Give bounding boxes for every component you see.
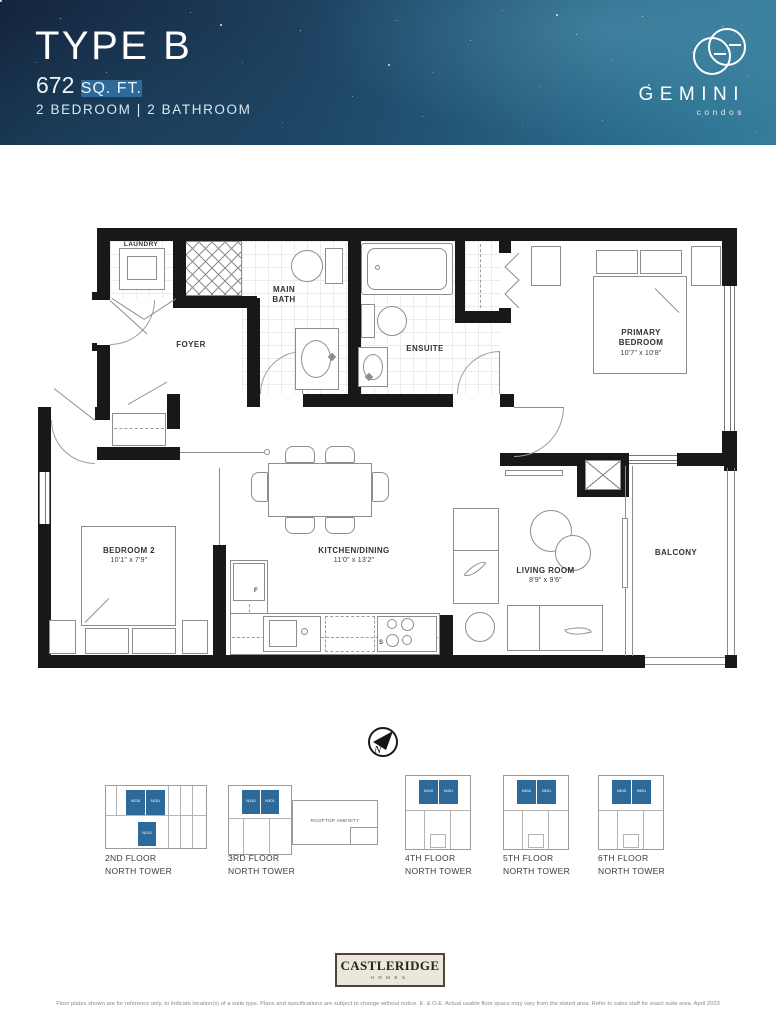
wall [722, 241, 737, 286]
room-label-primary: PRIMARY BEDROOM 10'7" x 10'8" [589, 328, 693, 358]
burner [386, 634, 399, 647]
fridge-label: F [254, 588, 258, 594]
builder-logo: CASTLERIDGE HOMES [335, 953, 445, 987]
wall [500, 453, 577, 466]
unit-badge: N401 [439, 780, 458, 804]
bed-pillow [132, 628, 176, 654]
brand-subtitle: condos [645, 107, 745, 117]
caption-line: NORTH TOWER [105, 865, 172, 878]
unit-badge: N410 [419, 780, 438, 804]
primary-door-leaf [514, 407, 564, 408]
console-divider [454, 550, 498, 551]
dining-chair [285, 517, 315, 534]
bedroom2-door-leaf [54, 388, 96, 421]
rail [180, 452, 267, 453]
toilet-tank [361, 304, 375, 338]
room-dims: 8'9" x 9'6" [488, 576, 603, 585]
suite-configuration: 2 BEDROOM | 2 BATHROOM [36, 102, 251, 117]
sliding-door [632, 466, 633, 656]
closet [112, 413, 166, 446]
burner [402, 635, 412, 645]
wall [361, 394, 453, 407]
sink-basin [269, 620, 297, 647]
bed-pillow [596, 250, 638, 274]
toilet-bowl [377, 306, 407, 336]
builder-name: CASTLERIDGE [337, 958, 443, 974]
gemini-logo-bar [714, 53, 726, 55]
shaft-x-icon [585, 460, 621, 490]
wall [440, 615, 453, 668]
dining-chair [251, 472, 268, 502]
room-label-line: BEDROOM 2 [81, 546, 177, 556]
unit-badge: N210 [138, 822, 156, 846]
room-label-kitchen: KITCHEN/DINING 11'0" x 13'2" [279, 546, 429, 565]
closet-door-leaf [128, 382, 167, 405]
room-dims: 10'1" x 7'9" [81, 556, 177, 565]
wall [97, 345, 110, 407]
area-number: 672 [36, 72, 74, 98]
stove-label: S [379, 640, 383, 646]
burner [387, 619, 397, 629]
rooftop-amenity-outline: ROOFTOP AMENITY [292, 800, 378, 845]
console-unit [453, 508, 499, 604]
keyplate-caption-6th: 6TH FLOOR NORTH TOWER [598, 852, 665, 878]
caption-line: 5TH FLOOR [503, 852, 570, 865]
faucet [301, 628, 308, 635]
keyplate-5th-floor: N510 N501 [503, 775, 569, 850]
window [724, 286, 735, 431]
bed-pillow [640, 250, 682, 274]
room-label-balcony: BALCONY [643, 548, 709, 558]
keyplate-4th-floor: N410 N401 [405, 775, 471, 850]
toilet-bowl [291, 250, 323, 282]
sliding-door-panel [622, 518, 628, 588]
svg-text:N: N [373, 744, 382, 756]
unit-badge: N310 [242, 790, 260, 814]
unit-badge: N610 [612, 780, 631, 804]
caption-line: NORTH TOWER [405, 865, 472, 878]
unit-badge: N601 [632, 780, 651, 804]
toilet-tank [325, 248, 343, 284]
wall [92, 343, 97, 351]
dining-chair [325, 517, 355, 534]
room-label-laundry: LAUNDRY [111, 241, 171, 249]
room-label-ensuite: ENSUITE [393, 344, 457, 354]
caption-line: 3RD FLOOR [228, 852, 295, 865]
half-wall [219, 468, 220, 545]
keyplate-caption-4th: 4TH FLOOR NORTH TOWER [405, 852, 472, 878]
wall [213, 545, 226, 668]
keyplate-6th-floor: N610 N601 [598, 775, 664, 850]
room-label-living: LIVING ROOM 8'9" x 9'6" [488, 566, 603, 585]
unit-badge: N201 [146, 790, 165, 815]
unit-badge: N501 [537, 780, 556, 804]
balcony-railing [645, 657, 729, 665]
nightstand [182, 620, 208, 654]
window [629, 455, 677, 464]
closet-rod [480, 244, 481, 308]
room-label-line: MAIN [258, 285, 310, 295]
wall [455, 241, 465, 319]
dining-chair [325, 446, 355, 463]
keyplate-3rd-floor: N310 N301 [228, 785, 292, 855]
wall [455, 311, 505, 323]
wall [92, 292, 97, 300]
caption-line: 6TH FLOOR [598, 852, 665, 865]
room-label-main-bath: MAIN BATH [258, 285, 310, 306]
keyplate-caption-2nd: 2ND FLOOR NORTH TOWER [105, 852, 172, 878]
washer-drum [127, 256, 157, 280]
shower [185, 241, 242, 296]
ensuite-door-leaf [499, 351, 500, 394]
wall [38, 655, 645, 668]
media-console [505, 470, 563, 476]
wall [97, 228, 110, 300]
caption-line: NORTH TOWER [503, 865, 570, 878]
page-title: TYPE B [35, 24, 192, 69]
gemini-logo-circle-right [708, 28, 746, 66]
disclaimer-text: Floor plates shown are for reference onl… [40, 1001, 736, 1007]
header-banner: TYPE B 672 SQ. FT. 2 BEDROOM | 2 BATHROO… [0, 0, 776, 145]
bed-pillow [85, 628, 129, 654]
caption-line: NORTH TOWER [598, 865, 665, 878]
nightstand [691, 246, 721, 286]
compass-icon: N [366, 725, 400, 759]
bed [593, 276, 687, 374]
keyplate-caption-3rd: 3RD FLOOR NORTH TOWER [228, 852, 295, 878]
bifold-door-icon [503, 253, 523, 308]
star-field-bright [0, 0, 2, 2]
wall [499, 308, 511, 323]
wall [173, 296, 257, 308]
dishwasher [325, 616, 375, 652]
room-dims: 10'7" x 10'8" [589, 349, 693, 358]
sofa-cushion-line [539, 606, 540, 650]
window [39, 472, 50, 524]
tub-drain [375, 265, 380, 270]
suite-area: 672 SQ. FT. [36, 72, 142, 99]
wall [499, 241, 511, 253]
area-unit: SQ. FT. [81, 80, 142, 97]
wall [95, 407, 110, 420]
nightstand [531, 246, 561, 286]
fridge [233, 563, 265, 601]
room-label-line: BEDROOM [589, 338, 693, 348]
gemini-logo-bar [729, 44, 741, 46]
rooftop-amenity-label: ROOFTOP AMENITY [293, 818, 377, 823]
caption-line: NORTH TOWER [228, 865, 295, 878]
room-label-line: BATH [258, 295, 310, 305]
unit-badge: N215 [126, 790, 145, 815]
wall [167, 394, 180, 429]
room-label-foyer: FOYER [161, 340, 221, 350]
rail-end [264, 449, 270, 455]
closet-rod [114, 428, 164, 429]
nightstand [49, 620, 76, 654]
unit-badge: N510 [517, 780, 536, 804]
burner [401, 618, 414, 631]
room-label-line: KITCHEN/DINING [279, 546, 429, 556]
wall [722, 431, 737, 466]
dining-table [268, 463, 372, 517]
caption-line: 4TH FLOOR [405, 852, 472, 865]
unit-badge: N301 [261, 790, 279, 814]
primary-door-arc [514, 407, 564, 457]
wall [725, 655, 737, 668]
caption-line: 2ND FLOOR [105, 852, 172, 865]
ottoman [465, 612, 495, 642]
wall [97, 228, 737, 241]
room-label-bedroom2: BEDROOM 2 10'1" x 7'9" [81, 546, 177, 565]
keyplate-caption-5th: 5TH FLOOR NORTH TOWER [503, 852, 570, 878]
dining-chair [285, 446, 315, 463]
floorplan-canvas: LAUNDRY MAIN BATH ENSUITE FOYER PRIMARY … [33, 228, 745, 668]
sink-basin [301, 340, 331, 378]
balcony-railing [727, 468, 735, 658]
room-dims: 11'0" x 13'2" [279, 556, 429, 565]
wall [247, 298, 260, 407]
room-label-line: PRIMARY [589, 328, 693, 338]
builder-subtitle: HOMES [337, 975, 443, 980]
bedroom2-door-arc [51, 420, 95, 464]
keyplate-2nd-floor: N215 N201 N210 [105, 785, 207, 849]
brand-name: GEMINI [605, 84, 745, 106]
wall [500, 394, 514, 407]
dining-chair [372, 472, 389, 502]
room-label-line: LIVING ROOM [488, 566, 603, 576]
wall [97, 447, 180, 460]
